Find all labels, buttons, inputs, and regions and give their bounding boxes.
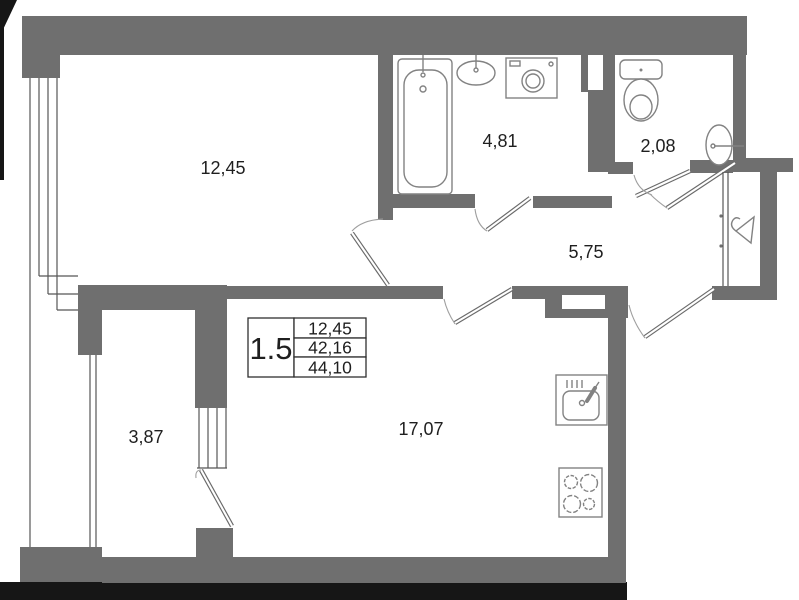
wall-segment xyxy=(603,55,615,91)
wall-segment xyxy=(78,285,102,355)
legend-table: 1.5 12,45 42,16 44,10 xyxy=(248,318,366,378)
floor-plan-svg: 12,45 4,81 2,08 5,75 3,87 17,07 1.5 12,4… xyxy=(0,0,799,600)
living-room-area-label: 12,45 xyxy=(200,158,245,178)
wc-area-label: 2,08 xyxy=(640,136,675,156)
washing-machine-icon xyxy=(506,58,557,98)
wardrobe-front xyxy=(719,172,728,286)
wall-segment xyxy=(760,158,777,300)
wardrobe-knob xyxy=(719,214,722,217)
wardrobe-knob xyxy=(719,244,722,247)
scan-edge-bottom xyxy=(0,582,627,600)
kitchen-door xyxy=(444,289,512,324)
wall-segment xyxy=(102,557,626,583)
wall-segment xyxy=(733,55,746,165)
vent-duct-opening xyxy=(562,295,605,309)
living-room-door xyxy=(352,219,388,285)
wc-door xyxy=(634,171,690,196)
wall-segment xyxy=(712,286,775,300)
wall-segment xyxy=(581,55,588,92)
bath-sink-icon xyxy=(457,55,495,85)
wall-segment xyxy=(378,194,475,208)
wall-segment xyxy=(608,286,626,583)
bathroom-area-label: 4,81 xyxy=(482,131,517,151)
legend-living-area: 12,45 xyxy=(308,319,352,339)
wall-segment xyxy=(195,285,227,408)
scan-edge-corner xyxy=(0,0,17,36)
balcony-glazing xyxy=(90,355,96,547)
kitchen-living-area-label: 17,07 xyxy=(398,419,443,439)
balcony-window xyxy=(197,408,227,468)
wall-segment xyxy=(227,286,443,299)
bathtub-icon xyxy=(398,55,452,194)
stove-icon xyxy=(559,468,602,517)
balcony-area-label: 3,87 xyxy=(128,427,163,447)
hanger-icon xyxy=(732,217,754,243)
facade-window-left xyxy=(30,78,78,547)
legend-apartment-area: 42,16 xyxy=(308,338,352,358)
entrance-door-lower xyxy=(629,289,714,338)
wall-segment xyxy=(533,196,612,208)
wall-segment xyxy=(20,547,102,582)
legend-room-count: 1.5 xyxy=(249,331,292,366)
kitchen-sink-icon xyxy=(556,375,607,425)
toilet-icon xyxy=(620,60,662,121)
wall-segment xyxy=(22,16,60,78)
floor-plan: 12,45 4,81 2,08 5,75 3,87 17,07 1.5 12,4… xyxy=(0,0,799,600)
hallway-area-label: 5,75 xyxy=(568,242,603,262)
bathroom-door xyxy=(475,198,530,231)
legend-total-area: 44,10 xyxy=(308,358,352,378)
balcony-door xyxy=(196,470,232,526)
wall-segment xyxy=(588,90,615,172)
wall-segment xyxy=(608,162,633,174)
wall-segment xyxy=(22,16,747,55)
